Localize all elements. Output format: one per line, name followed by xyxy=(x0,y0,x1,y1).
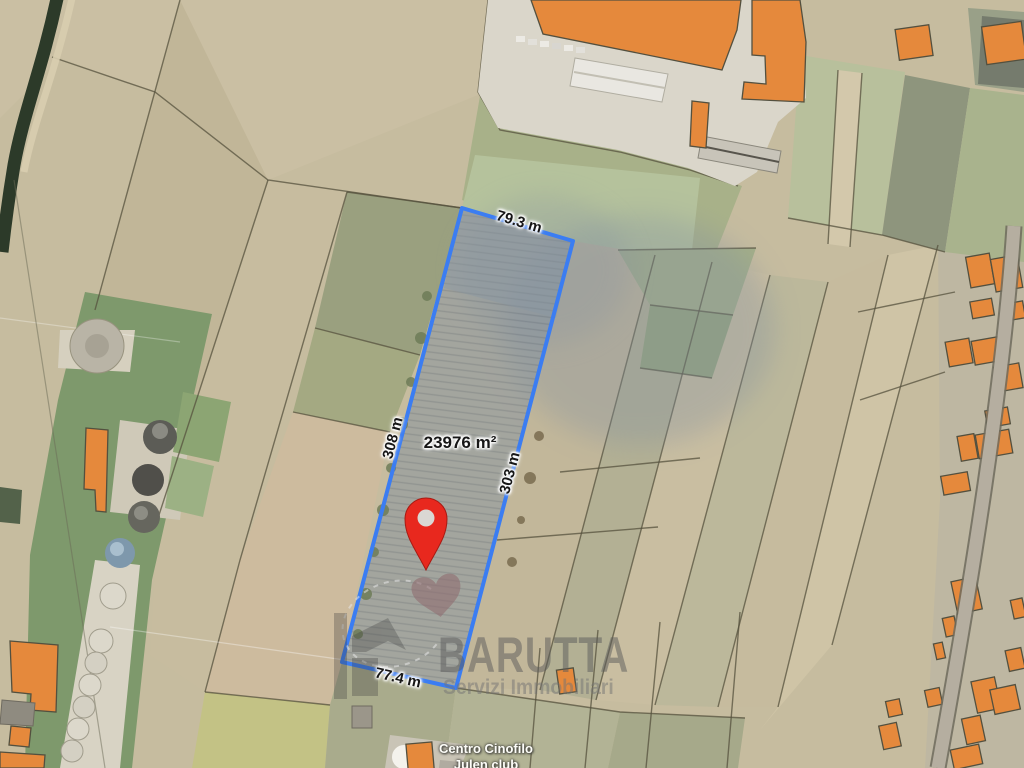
poi-label-line1: Centro Cinofilo xyxy=(425,741,547,757)
watermark-brand: BARUTTA xyxy=(438,630,629,680)
watermark-tagline: Servizi Immobiliari xyxy=(443,677,614,698)
poi-label[interactable]: Centro Cinofilo Julen club xyxy=(425,741,547,768)
map-viewport[interactable]: 79.3 m 308 m 303 m 77.4 m 23976 m² BARUT… xyxy=(0,0,1024,768)
poi-label-line2: Julen club xyxy=(425,757,547,768)
parcel-area-label: 23976 m² xyxy=(424,433,497,453)
